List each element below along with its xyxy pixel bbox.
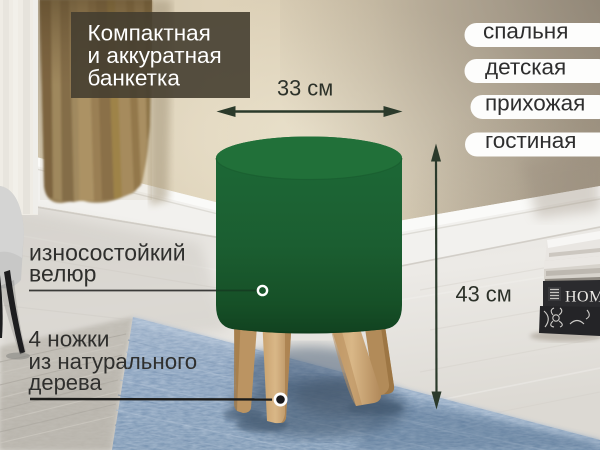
svg-text:спальня: спальня (483, 19, 568, 44)
svg-text:Компактная: Компактная (88, 21, 211, 46)
svg-text:и аккуратная: и аккуратная (88, 43, 222, 68)
svg-text:дерева: дерева (29, 370, 103, 395)
svg-text:HOME: HOME (565, 289, 600, 306)
svg-text:43 см: 43 см (456, 282, 512, 307)
svg-text:детская: детская (485, 55, 566, 80)
svg-text:велюр: велюр (29, 261, 96, 287)
svg-text:4 ножки: 4 ножки (29, 327, 110, 352)
svg-text:33 см: 33 см (277, 76, 333, 101)
svg-text:гостиная: гостиная (485, 128, 576, 153)
svg-text:прихожая: прихожая (485, 91, 585, 116)
svg-text:банкетка: банкетка (88, 66, 181, 91)
